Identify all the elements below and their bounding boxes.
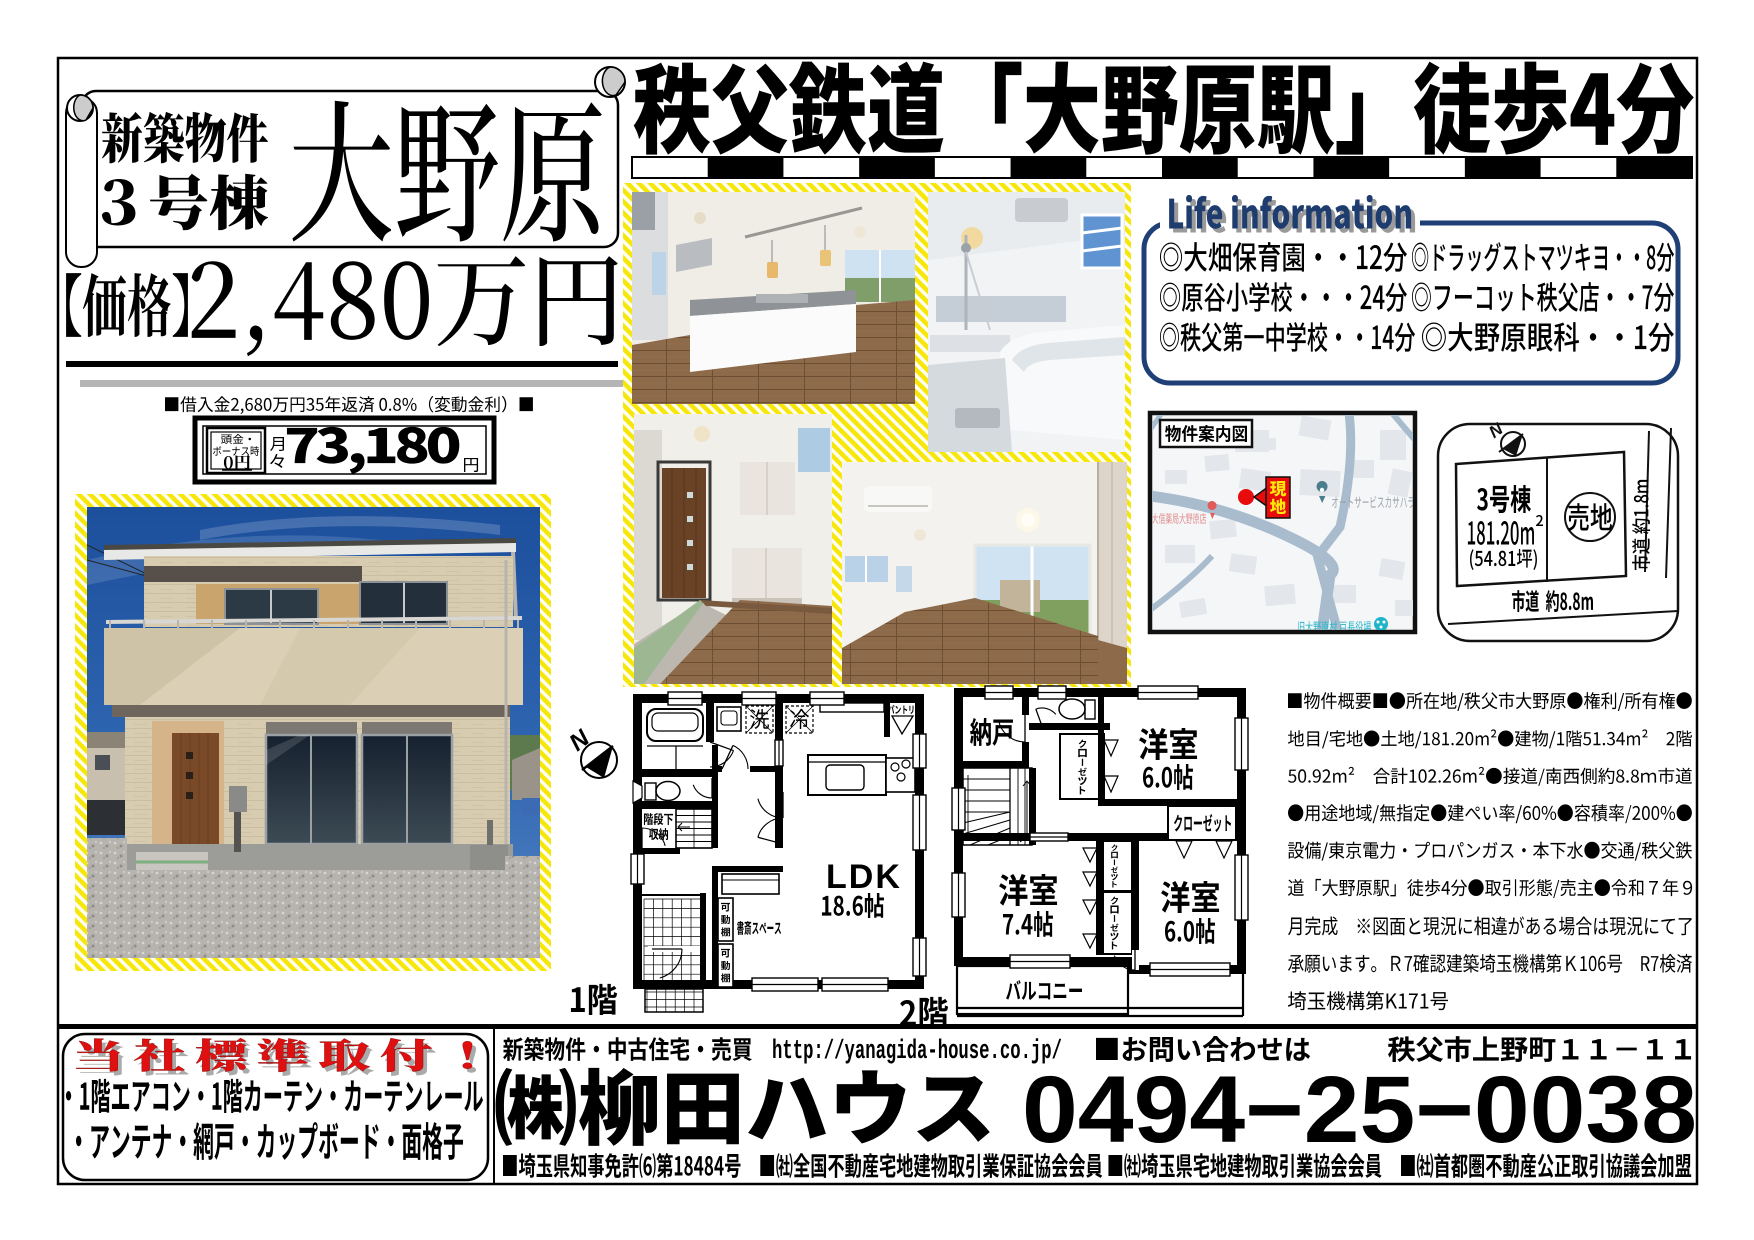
svg-text:http://yanagida-house.co.jp/: http://yanagida-house.co.jp/: [772, 1037, 1062, 1067]
svg-text:0494−25−0038: 0494−25−0038: [1022, 1057, 1697, 1163]
svg-text:LDK: LDK: [826, 858, 902, 896]
